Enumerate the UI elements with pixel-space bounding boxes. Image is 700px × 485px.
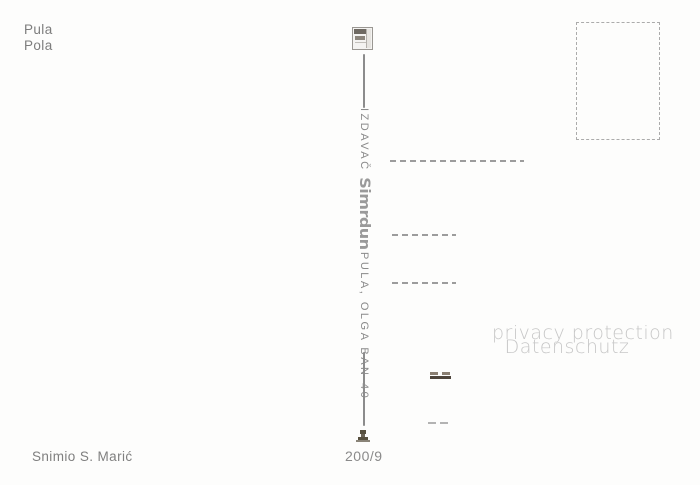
divider-line-bottom (363, 352, 365, 426)
publisher-logo-icon (352, 27, 373, 50)
caption-line-2: Pola (24, 38, 53, 54)
photo-credit: Snimio S. Marić (32, 449, 133, 464)
redaction-mark (430, 371, 451, 380)
divider-line-top (363, 54, 365, 108)
address-line-3 (392, 282, 456, 284)
faint-dashes (428, 422, 449, 424)
publisher-logo-band (354, 29, 366, 34)
caption-block: Pula Pola (24, 22, 53, 54)
caption-line-1: Pula (24, 22, 53, 38)
privacy-watermark: privacy protection Datenschutz (492, 324, 642, 354)
address-line-1 (390, 160, 524, 162)
publisher-vertical-text: IZDAVAČ Simrdun PULA, OLGA BAN 40 (355, 108, 373, 348)
stamp-box (576, 22, 660, 140)
printer-mark-icon (356, 430, 370, 443)
publisher-logo-inner (355, 36, 365, 40)
publisher-logo-line (355, 42, 366, 43)
publisher-prefix: IZDAVAČ (358, 108, 370, 172)
watermark-line-2: Datenschutz (492, 340, 642, 354)
publisher-logo-column (366, 29, 371, 48)
publisher-logo-text: Simrdun (356, 177, 372, 249)
postcard-back: Pula Pola IZDAVAČ Simrdun PULA, OLGA BAN… (0, 0, 700, 485)
series-number: 200/9 (345, 448, 383, 464)
address-line-2 (392, 234, 456, 236)
